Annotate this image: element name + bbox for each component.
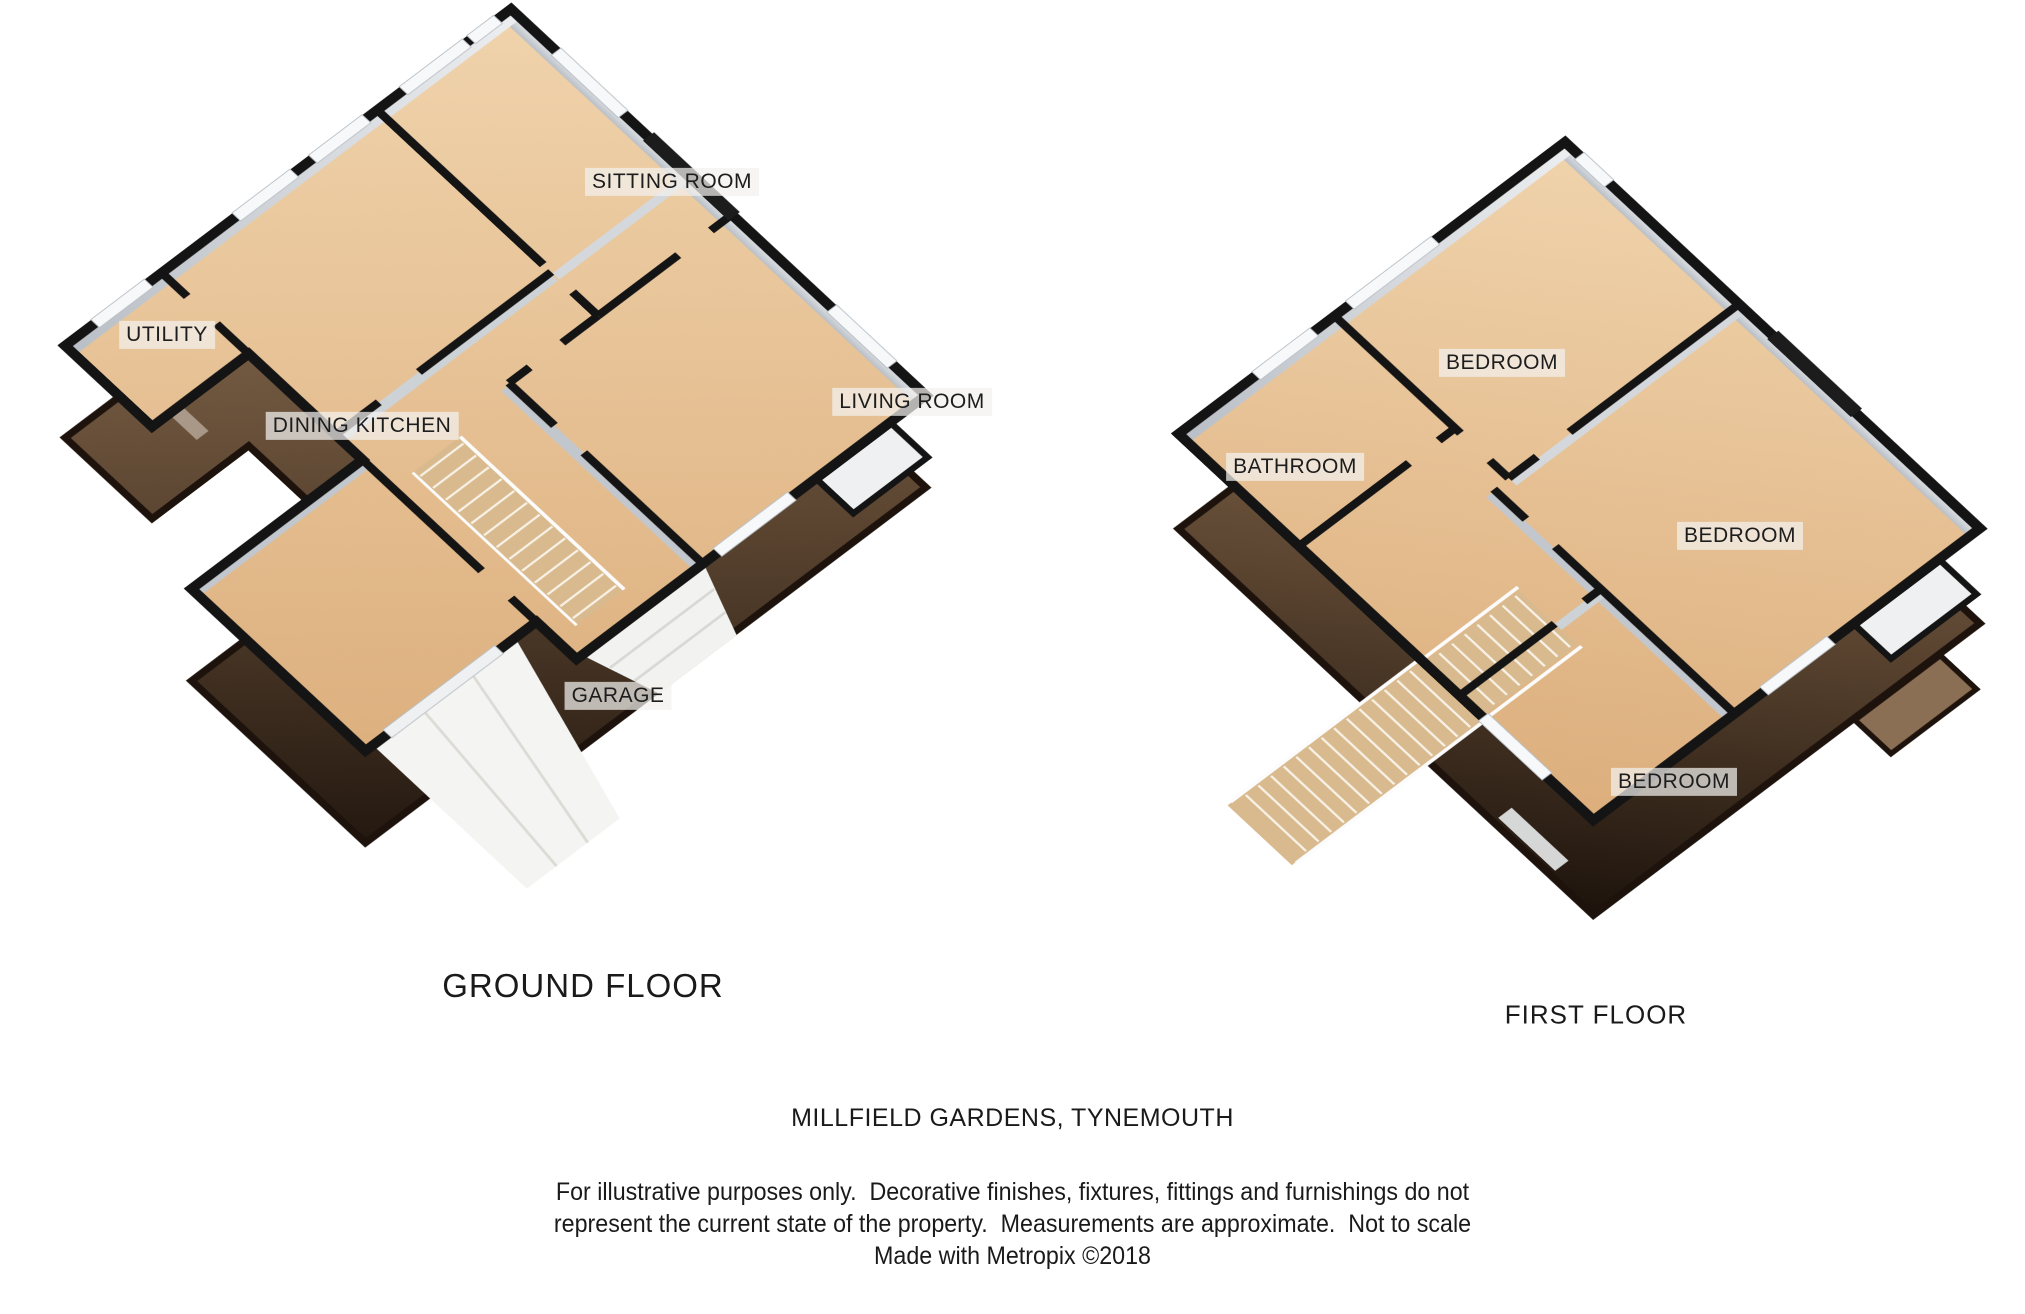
disclaimer-line-2: represent the current state of the prope… (71, 1208, 1954, 1240)
metropix-credit: Made with Metropix ©2018 (71, 1240, 1954, 1272)
room-label-garage: GARAGE (565, 682, 672, 710)
room-label-living-room: LIVING ROOM (832, 388, 992, 416)
property-address: MILLFIELD GARDENS, TYNEMOUTH (0, 1104, 2025, 1133)
room-label-dining-kitchen: DINING KITCHEN (266, 412, 459, 440)
room-label-bedroom-bottom: BEDROOM (1611, 768, 1737, 796)
first-floor-caption: FIRST FLOOR (1505, 1000, 1687, 1031)
room-label-bathroom: BATHROOM (1226, 453, 1364, 481)
disclaimer-line-1: For illustrative purposes only. Decorati… (71, 1176, 1954, 1208)
ground-floor-plan (0, 9, 926, 788)
room-label-utility: UTILITY (119, 321, 215, 349)
floorplan-image: SITTING ROOM UTILITY DINING KITCHEN LIVI… (0, 0, 2025, 1314)
ground-floor-caption: GROUND FLOOR (442, 967, 724, 1005)
room-label-sitting-room: SITTING ROOM (585, 168, 759, 196)
room-label-bedroom-right: BEDROOM (1677, 522, 1803, 550)
room-label-bedroom-top: BEDROOM (1439, 349, 1565, 377)
disclaimer: For illustrative purposes only. Decorati… (71, 1176, 1954, 1272)
